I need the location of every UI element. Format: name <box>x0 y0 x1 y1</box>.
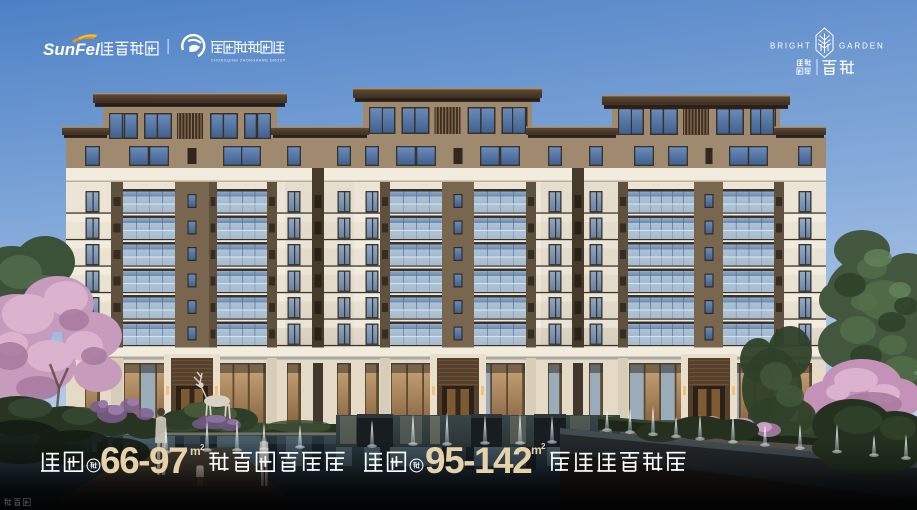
svg-text:BRIGHT: BRIGHT <box>770 42 812 51</box>
svg-text:95-142: 95-142 <box>425 440 532 481</box>
svg-text:GARDEN: GARDEN <box>839 42 885 51</box>
svg-text:2: 2 <box>541 442 546 451</box>
svg-text:SunFel: SunFel <box>43 40 101 59</box>
svg-text:2: 2 <box>200 443 205 452</box>
svg-text:CHONGQING ZHONGHANG GROUP: CHONGQING ZHONGHANG GROUP <box>211 59 286 63</box>
svg-text:66-97: 66-97 <box>100 440 187 481</box>
